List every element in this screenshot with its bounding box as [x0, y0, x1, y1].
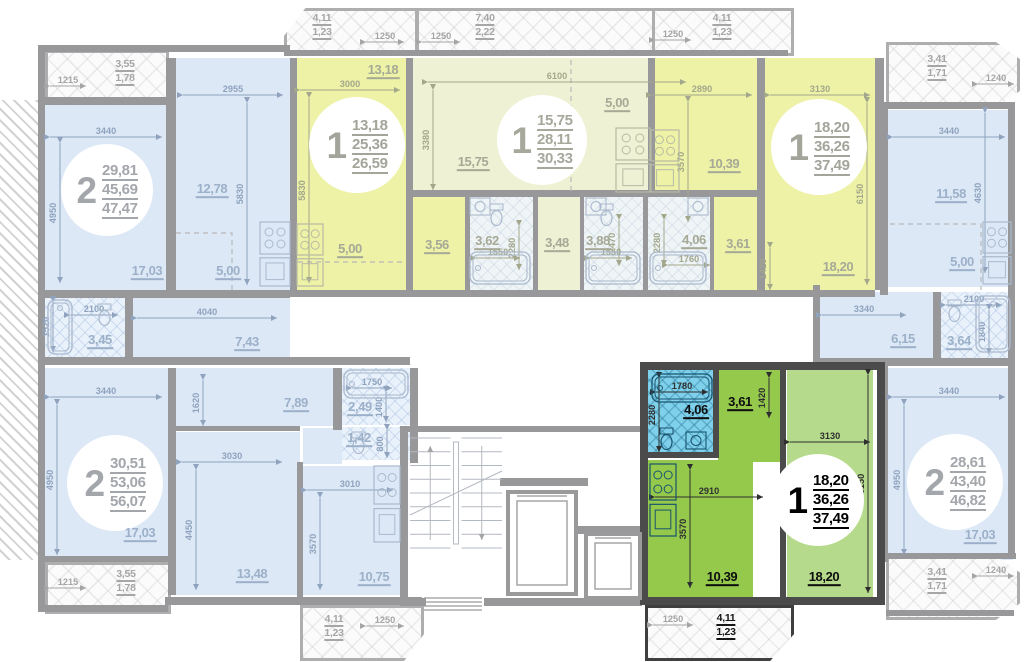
wall-segment: [333, 368, 342, 430]
room-area-label: 10,75: [358, 570, 391, 586]
balcony-reduced-area-value: 1,78: [116, 582, 135, 596]
room-area-label: 3,48: [544, 236, 570, 252]
room-area[interactable]: [176, 368, 333, 426]
room-area[interactable]: [133, 297, 290, 357]
apartment-room-count: 2: [84, 465, 105, 502]
apartment-area-value: 30,51: [110, 455, 146, 474]
wall-segment: [38, 605, 168, 612]
wall-segment: [578, 526, 646, 534]
apartment-area-values: 18,2036,2637,49: [813, 472, 849, 529]
wall-segment: [484, 598, 642, 606]
elevator-shaft: [508, 492, 576, 594]
wall-segment: [410, 368, 418, 463]
apartment-stats-circle[interactable]: 230,5153,0656,07: [67, 435, 163, 531]
selected-apartment-wall-segment: [648, 452, 716, 458]
apartment-stats-circle[interactable]: 113,1825,3626,59: [309, 97, 405, 193]
room-area-label: 12,78: [196, 182, 229, 198]
apartment-area-value: 25,36: [352, 136, 388, 155]
balcony-area-value: 3,41: [927, 53, 946, 67]
balcony-area-label: 3,411,71: [927, 566, 946, 594]
apartment-room-count: 1: [326, 127, 347, 164]
room-area[interactable]: [342, 368, 410, 425]
balcony-area-label: 3,551,78: [115, 58, 134, 86]
wall-segment: [165, 597, 422, 605]
wall-segment: [408, 598, 426, 606]
balcony-area-value: 4,11: [716, 612, 735, 626]
room-area-label: 11,58: [935, 187, 967, 203]
balcony: [886, 42, 1020, 108]
room-area-label: 3,56: [424, 238, 450, 254]
apartment-area-value: 15,75: [537, 112, 573, 131]
apartment-area-value: 46,82: [950, 492, 986, 511]
room-area-label: 13,48: [236, 567, 269, 583]
selected-apartment-wall-segment: [640, 597, 885, 605]
wall-segment: [710, 195, 714, 290]
adjacent-section-hatch: [0, 100, 41, 560]
room-area[interactable]: [296, 228, 406, 290]
balcony-area-value: 3,55: [116, 568, 135, 582]
apartment-room-count: 1: [787, 482, 808, 519]
balcony: [300, 605, 424, 661]
balcony-area-value: 7,40: [475, 12, 494, 26]
wall-segment: [500, 478, 588, 486]
room-area-label: 3,61: [725, 237, 751, 253]
elevator-shaft: [586, 534, 640, 598]
wall-segment: [886, 553, 1016, 559]
room-area-label: 6,15: [890, 332, 916, 348]
wall-segment: [45, 290, 290, 298]
balcony-area-label: 7,402,22: [475, 12, 494, 40]
wall-segment: [38, 357, 410, 365]
room-area-label: 7,89: [283, 396, 309, 412]
room-area-label: 13,18: [367, 63, 400, 79]
room-area[interactable]: [718, 370, 780, 462]
wall-segment: [643, 195, 648, 290]
wall-segment: [1008, 102, 1015, 558]
room-area[interactable]: [303, 428, 342, 464]
room-area-label: 3,88: [585, 234, 611, 250]
balcony-reduced-area-value: 1,23: [312, 26, 331, 40]
wall-segment: [297, 462, 303, 597]
balcony-reduced-area-value: 1,23: [712, 26, 731, 40]
apartment-area-values: 28,6143,4046,82: [950, 454, 986, 511]
apartment-area-value: 18,20: [814, 119, 850, 138]
balcony-area-label: 4,111,23: [716, 612, 735, 640]
wall-segment: [45, 556, 173, 562]
apartment-area-value: 30,33: [537, 150, 573, 169]
selected-apartment-wall-segment: [640, 362, 885, 370]
wall-segment: [933, 292, 941, 358]
apartment-room-count: 2: [924, 464, 945, 501]
room-area[interactable]: [45, 297, 125, 357]
selected-apartment-wall-segment: [640, 362, 648, 605]
apartment-area-value: 56,07: [110, 493, 146, 512]
wall-segment: [406, 58, 413, 290]
apartment-area-value: 36,26: [814, 138, 850, 157]
elevator-car: [517, 501, 567, 585]
apartment-area-value: 18,20: [813, 472, 849, 491]
apartment-area-value: 36,26: [813, 491, 849, 510]
apartment-area-value: 47,47: [102, 200, 138, 219]
balcony-area-value: 3,55: [115, 58, 134, 72]
apartment-area-value: 45,69: [102, 181, 138, 200]
wall-segment: [38, 45, 290, 52]
apartment-area-value: 28,61: [950, 454, 986, 473]
balcony-reduced-area-value: 1,78: [115, 72, 134, 86]
room-area-label: 5,00: [337, 242, 363, 258]
balcony-area-label: 3,411,71: [927, 53, 946, 81]
balcony: [284, 8, 418, 56]
room-area-label: 7,43: [234, 335, 260, 351]
balcony-area-value: 3,41: [927, 566, 946, 580]
wall-segment: [880, 103, 888, 295]
apartment-area-values: 30,5153,0656,07: [110, 455, 146, 512]
room-area-label: 2,49: [347, 400, 373, 416]
room-area[interactable]: [818, 292, 938, 358]
wall-segment: [284, 50, 788, 56]
balcony-reduced-area-value: 2,22: [475, 26, 494, 40]
kitchen-area-label: 5,00: [949, 255, 975, 271]
apartment-area-values: 13,1825,3626,59: [352, 117, 388, 174]
stair-landing-rail: [453, 442, 458, 544]
balcony: [416, 8, 690, 56]
room-area-label: 3,45: [87, 333, 113, 349]
apartment-stats-circle[interactable]: 115,7528,1130,33: [497, 95, 587, 185]
room-area-label: 10,39: [708, 157, 741, 173]
wall-segment: [533, 195, 538, 290]
apartment-stats-circle[interactable]: 228,6143,4046,82: [907, 434, 1003, 530]
room-area-label: 17,03: [964, 528, 997, 544]
apartment-area-value: 43,40: [950, 473, 986, 492]
apartment-room-count: 1: [788, 129, 809, 166]
balcony-reduced-area-value: 1,71: [927, 580, 946, 594]
balcony-area-label: 4,111,23: [324, 613, 343, 641]
room-area-label: 15,75: [457, 155, 490, 171]
apartment-area-values: 18,2036,2637,49: [814, 119, 850, 176]
balcony-area-value: 4,11: [324, 613, 343, 627]
apartment-stats-circle[interactable]: 229,8145,6947,47: [61, 144, 153, 236]
wall-segment: [757, 58, 765, 290]
wall-segment: [290, 58, 297, 290]
apartment-area-value: 29,81: [102, 162, 138, 181]
apartment-room-count: 2: [76, 172, 97, 209]
selected-apartment-wall-segment: [713, 366, 719, 458]
balcony-reduced-area-value: 1,23: [716, 626, 735, 640]
wall-segment: [813, 285, 820, 360]
room-area-label: 18,20: [808, 570, 841, 586]
kitchen-area-label: 5,00: [604, 96, 630, 112]
apartment-area-values: 29,8145,6947,47: [102, 162, 138, 219]
floor-plan: 17,0312,783,457,4313,185,003,563,6215,75…: [0, 0, 1024, 662]
room-area[interactable]: [176, 58, 292, 290]
wall-segment: [580, 195, 584, 290]
room-area[interactable]: [655, 58, 757, 195]
wall-segment: [38, 45, 45, 605]
balcony: [45, 50, 169, 103]
wall-segment: [166, 58, 176, 290]
wall-segment: [290, 290, 875, 297]
apartment-area-value: 37,49: [814, 157, 850, 176]
wall-segment: [465, 195, 470, 290]
balcony-reduced-area-value: 1,23: [324, 627, 343, 641]
apartment-area-value: 26,59: [352, 155, 388, 174]
apartment-stats-circle[interactable]: 118,2036,2637,49: [772, 454, 864, 546]
room-area-label: 4,06: [683, 403, 709, 419]
balcony-reduced-area-value: 1,71: [927, 67, 946, 81]
room-area-label: 3,61: [727, 395, 753, 411]
wall-segment: [648, 58, 655, 197]
apartment-room-count: 1: [511, 122, 532, 159]
room-area-label: 18,20: [822, 260, 855, 276]
room-area-label: 17,03: [124, 526, 157, 542]
room-area-label: 1,42: [346, 431, 372, 447]
apartment-area-value: 37,49: [813, 510, 849, 529]
wall-segment: [886, 610, 1014, 616]
wall-segment: [45, 97, 175, 105]
wall-segment: [125, 297, 133, 357]
room-area-label: 4,06: [681, 233, 707, 249]
room-area-label: 3,62: [474, 234, 500, 250]
balcony-area-label: 3,551,78: [116, 568, 135, 596]
stair-break-line: [410, 471, 502, 515]
wall-segment: [880, 102, 1015, 109]
apartment-area-value: 13,18: [352, 117, 388, 136]
wall-segment: [176, 426, 300, 431]
wall-segment: [400, 432, 408, 606]
room-area-label: 17,03: [131, 264, 164, 280]
kitchen-area-label: 5,00: [215, 264, 241, 280]
elevator-car: [595, 543, 631, 589]
balcony-area-value: 4,11: [712, 12, 731, 26]
apartment-area-values: 15,7528,1130,33: [537, 112, 573, 169]
selected-apartment-wall-segment: [877, 362, 885, 605]
room-area-label: 3,64: [946, 334, 972, 350]
apartment-stats-circle[interactable]: 118,2036,2637,49: [771, 99, 867, 195]
wall-segment: [400, 426, 640, 432]
apartment-area-value: 53,06: [110, 474, 146, 493]
room-area-label: 10,39: [706, 570, 739, 586]
balcony-area-value: 4,11: [312, 12, 331, 26]
apartment-area-value: 28,11: [537, 131, 573, 150]
balcony-area-label: 4,111,23: [312, 12, 331, 40]
balcony-area-label: 4,111,23: [712, 12, 731, 40]
